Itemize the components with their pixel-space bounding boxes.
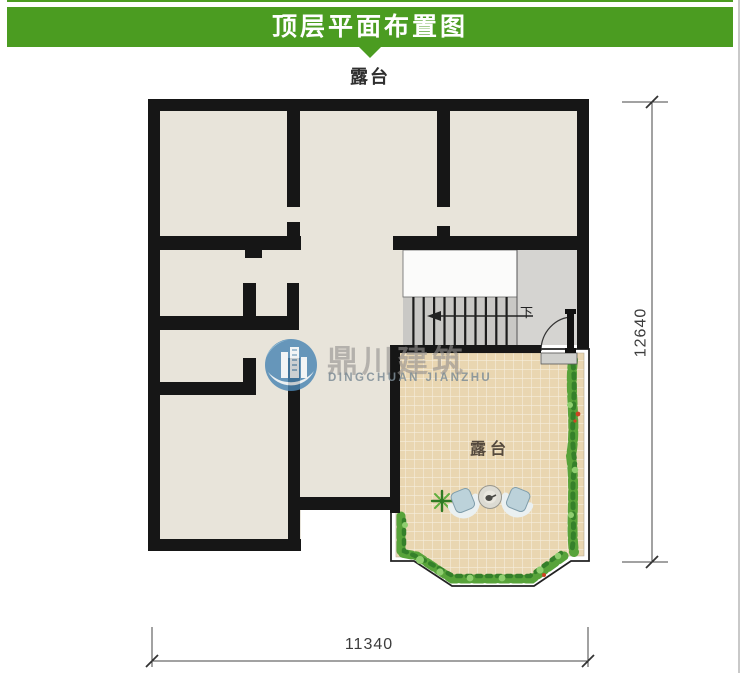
watermark-name-en: DINGCHUAN JIANZHU [328, 372, 492, 384]
terrace-room-label: 露台 [455, 435, 525, 459]
door-leaf [567, 313, 574, 351]
terrace-tile-floor [396, 353, 584, 581]
dimension-width: 11340 [329, 636, 409, 654]
terrace-table [479, 486, 502, 509]
watermark-logo-icon [264, 338, 318, 392]
staircase [403, 250, 577, 345]
page: { "header": { "title": "顶层平面布置图" }, "pla… [0, 0, 740, 673]
stairs-down-label: 下 [520, 302, 538, 321]
dimension-height: 12640 [633, 293, 650, 373]
terrace [391, 349, 589, 586]
